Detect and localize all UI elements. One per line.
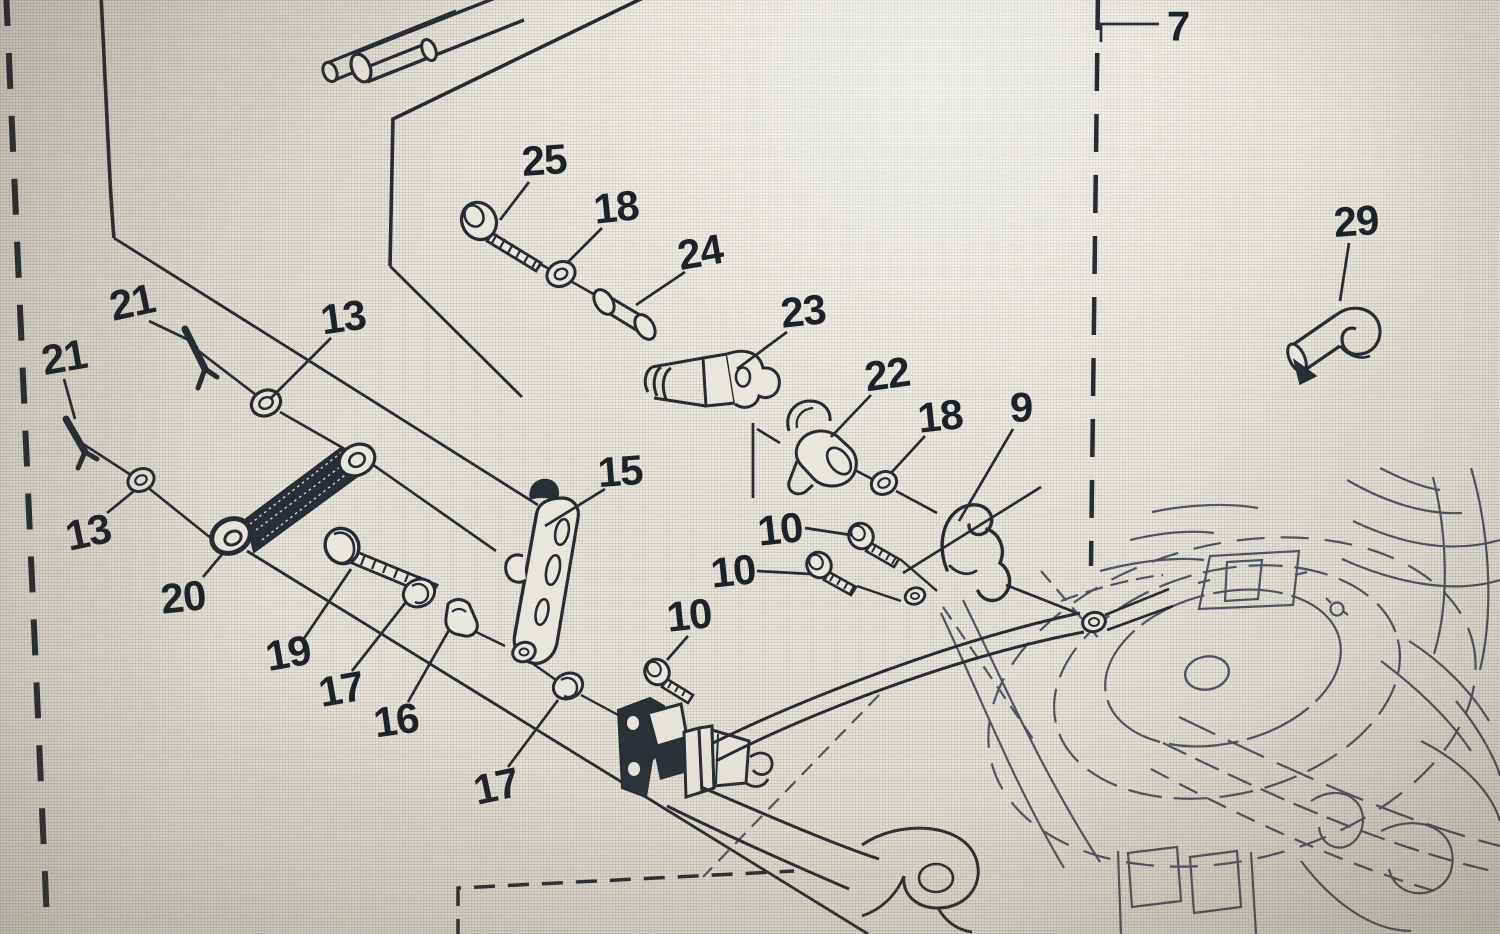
callout-21: 21 bbox=[105, 274, 193, 342]
bolt-10-a bbox=[844, 519, 899, 567]
part-label-17: 17 bbox=[315, 662, 367, 716]
callout-16: 16 bbox=[371, 630, 449, 746]
part-label-24: 24 bbox=[674, 225, 728, 279]
cotter-pin-21-upper bbox=[185, 329, 217, 388]
callout-18: 18 bbox=[568, 181, 641, 262]
callout-13: 13 bbox=[271, 291, 368, 398]
part-label-18: 18 bbox=[915, 390, 965, 441]
washer-17-lower bbox=[549, 668, 587, 703]
callout-21: 21 bbox=[38, 330, 91, 419]
leader-line-16 bbox=[408, 630, 449, 702]
engine-straps-top-right bbox=[1342, 468, 1500, 670]
leader-line-18 bbox=[568, 228, 602, 262]
part-label-10: 10 bbox=[664, 589, 713, 640]
callout-22: 22 bbox=[831, 348, 912, 437]
leader-line-22 bbox=[831, 395, 871, 437]
dashed-border-bottom bbox=[458, 871, 794, 934]
leader-line-21 bbox=[64, 379, 75, 419]
solid-border-a bbox=[101, 0, 114, 238]
flywheel-center-hole bbox=[1182, 653, 1231, 693]
engine-assembly bbox=[703, 468, 1500, 934]
flywheel-inner-ring bbox=[1088, 566, 1357, 770]
callout-10: 10 bbox=[755, 503, 851, 554]
part-label-15: 15 bbox=[596, 446, 645, 496]
callout-29: 29 bbox=[1332, 196, 1380, 301]
part-callouts: 7211321132019171617251824232218910101015… bbox=[38, 3, 1380, 814]
dashed-border-left bbox=[6, 0, 48, 934]
screen-photo-background: 7211321132019171617251824232218910101015… bbox=[0, 0, 1500, 934]
callout-18: 18 bbox=[891, 390, 965, 473]
link-plate-15 bbox=[506, 479, 579, 665]
washer-18-right bbox=[867, 467, 900, 498]
leader-line-24 bbox=[636, 272, 685, 305]
part-label-9: 9 bbox=[1010, 384, 1032, 431]
callout-7: 7 bbox=[1101, 3, 1189, 50]
washer-18-top bbox=[543, 257, 580, 291]
part-label-17: 17 bbox=[469, 758, 523, 813]
part-label-13: 13 bbox=[61, 504, 115, 559]
part-label-22: 22 bbox=[862, 348, 913, 401]
part-label-13: 13 bbox=[318, 291, 369, 344]
callout-24: 24 bbox=[636, 225, 728, 305]
callout-25: 25 bbox=[500, 135, 569, 220]
part-label-18: 18 bbox=[591, 181, 641, 232]
clevis-bracket bbox=[618, 698, 772, 797]
lower-strap-and-scroll bbox=[667, 787, 978, 932]
bolt-25 bbox=[455, 196, 541, 271]
clevis-lever-assembly bbox=[618, 589, 1173, 932]
leader-line-19 bbox=[303, 569, 351, 640]
callout-19: 19 bbox=[262, 569, 351, 680]
engine-nut bbox=[1326, 598, 1348, 616]
callout-20: 20 bbox=[158, 552, 224, 623]
leader-line-25 bbox=[500, 182, 529, 220]
yoke-23 bbox=[645, 351, 779, 407]
pivot-22 bbox=[788, 401, 857, 494]
callout-13: 13 bbox=[61, 491, 134, 560]
part-label-7: 7 bbox=[1167, 3, 1189, 50]
rim-arcs-bottom bbox=[1151, 769, 1441, 893]
leader-line-10 bbox=[805, 528, 851, 535]
pulley-arcs-left bbox=[941, 600, 1100, 868]
part-label-10: 10 bbox=[755, 503, 804, 554]
bolt-10-b bbox=[802, 548, 856, 595]
hidden-axis-dashes bbox=[703, 571, 1101, 877]
exploded-parts-diagram: 7211321132019171617251824232218910101015… bbox=[0, 0, 1500, 934]
bolt-10-c bbox=[640, 655, 693, 703]
part-label-21: 21 bbox=[38, 330, 91, 384]
clip-29 bbox=[1284, 308, 1380, 384]
leader-line-17 bbox=[352, 602, 406, 671]
spacer-24 bbox=[590, 286, 660, 343]
callout-10: 10 bbox=[664, 589, 713, 660]
leader-line-7 bbox=[1101, 24, 1159, 42]
part-label-21: 21 bbox=[105, 274, 159, 329]
dashed-border-right bbox=[1091, 0, 1098, 566]
leader-line-10 bbox=[757, 571, 811, 574]
leader-line-17 bbox=[508, 700, 558, 767]
part-label-19: 19 bbox=[262, 626, 314, 680]
leader-line-29 bbox=[1340, 243, 1349, 301]
spacer-16 bbox=[446, 600, 477, 637]
arm-pivot-eye bbox=[903, 585, 927, 607]
part-label-16: 16 bbox=[371, 694, 422, 747]
large-rod-end bbox=[347, 51, 375, 85]
leader-line-13 bbox=[107, 491, 134, 513]
part-label-10: 10 bbox=[708, 545, 757, 596]
leader-line-20 bbox=[203, 552, 224, 577]
small-rod-end bbox=[320, 60, 340, 83]
engine-base-blocks bbox=[1118, 847, 1256, 934]
hook-bracket-9 bbox=[942, 505, 1009, 601]
part-label-29: 29 bbox=[1332, 196, 1380, 246]
part-label-23: 23 bbox=[778, 285, 827, 336]
cotter-pin-21-left bbox=[66, 419, 97, 468]
part-label-25: 25 bbox=[520, 135, 569, 185]
part-label-20: 20 bbox=[158, 571, 207, 622]
engine-boss bbox=[1198, 551, 1307, 609]
